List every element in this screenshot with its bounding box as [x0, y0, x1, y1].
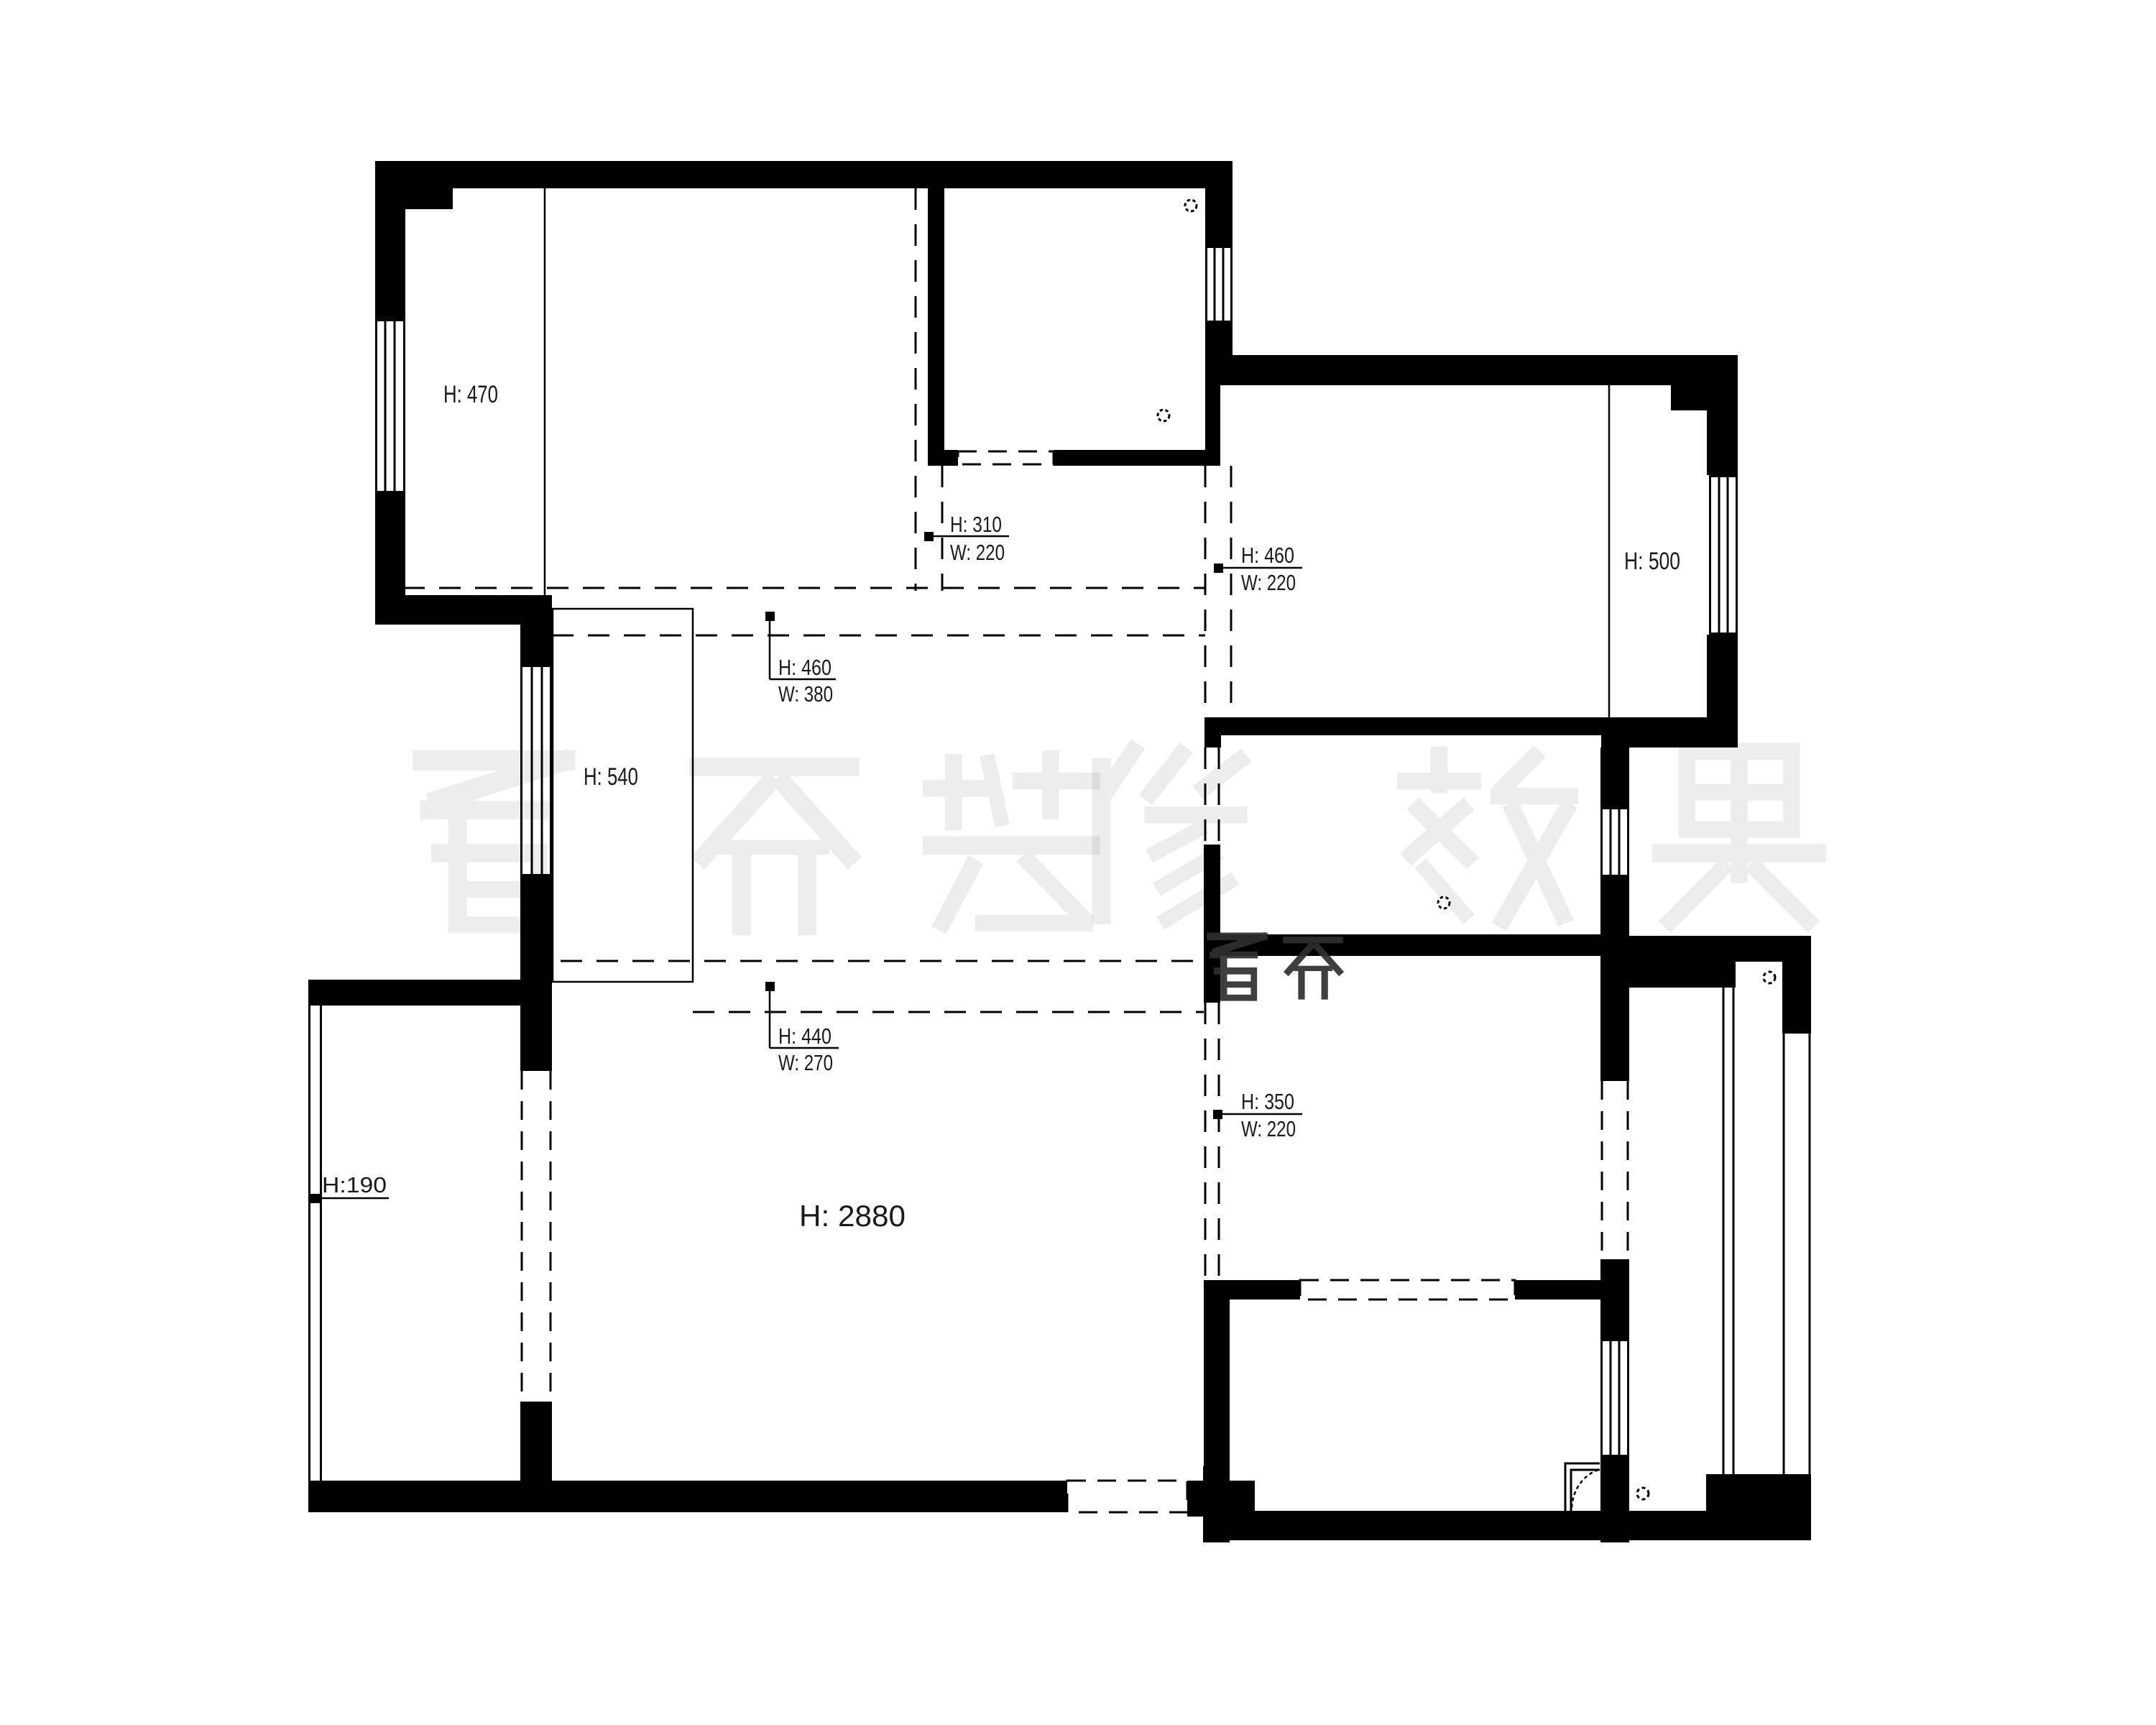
- svg-text:H:190: H:190: [322, 1172, 387, 1197]
- svg-text:W: 220: W: 220: [1241, 1116, 1296, 1141]
- svg-text:H: 440: H: 440: [778, 1023, 831, 1049]
- svg-text:W: 380: W: 380: [778, 681, 833, 707]
- svg-text:H: 500: H: 500: [1624, 548, 1680, 575]
- svg-text:H: 350: H: 350: [1241, 1089, 1294, 1114]
- svg-text:W: 220: W: 220: [1241, 570, 1296, 595]
- svg-text:H: 2880: H: 2880: [799, 1199, 906, 1233]
- svg-text:H: 540: H: 540: [584, 763, 638, 791]
- svg-text:W: 270: W: 270: [778, 1050, 833, 1075]
- svg-text:H: 310: H: 310: [950, 512, 1002, 537]
- svg-text:W: 220: W: 220: [950, 540, 1005, 565]
- svg-text:H: 470: H: 470: [443, 381, 498, 408]
- svg-text:H: 460: H: 460: [1241, 543, 1294, 568]
- svg-text:H: 460: H: 460: [778, 655, 831, 680]
